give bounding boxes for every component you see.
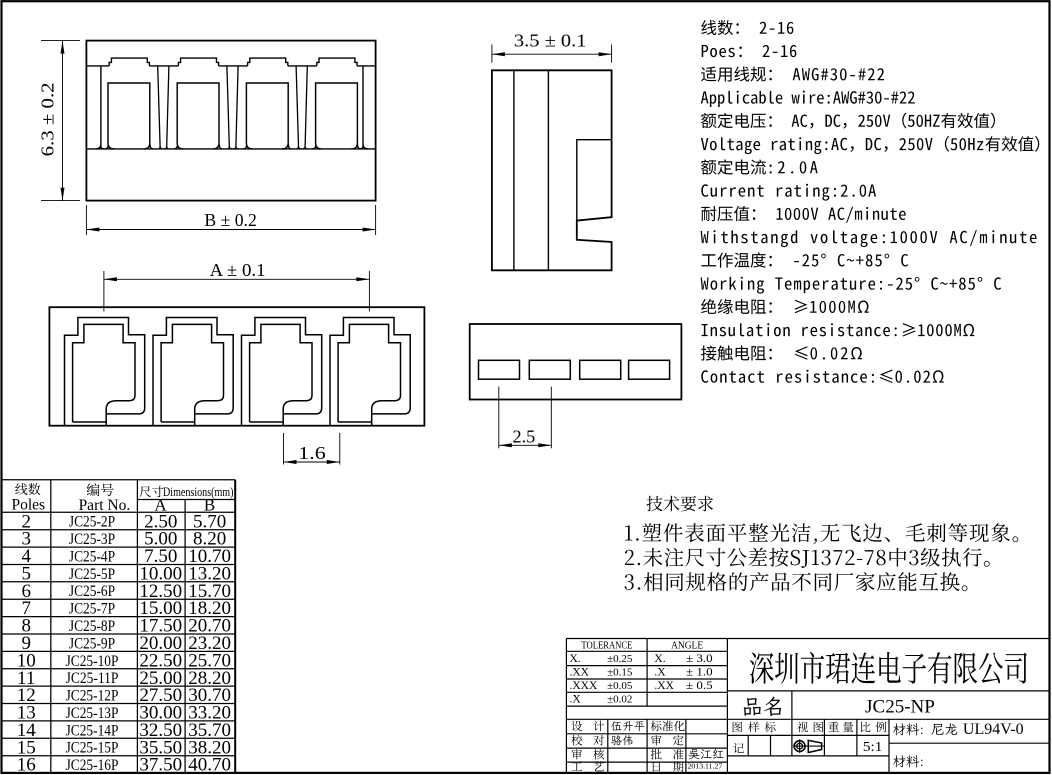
svg-text:±0.25: ±0.25 (607, 653, 633, 665)
svg-text:JC25-15P: JC25-15P (66, 740, 119, 757)
svg-text:X.: X. (570, 653, 581, 665)
svg-text:JC25-14P: JC25-14P (66, 722, 119, 739)
svg-text:B ± 0.2: B ± 0.2 (204, 210, 256, 230)
svg-text:Dimensions(mm): Dimensions(mm) (163, 484, 234, 499)
svg-text:ANGLE: ANGLE (671, 640, 703, 652)
svg-text:JC25-11P: JC25-11P (66, 670, 119, 687)
svg-text:JC25-7P: JC25-7P (69, 601, 115, 618)
svg-text:.XXX: .XXX (570, 680, 598, 692)
svg-text:± 0.5: ± 0.5 (686, 680, 713, 692)
svg-text:JC25-16P: JC25-16P (66, 757, 119, 774)
svg-text:JC25-10P: JC25-10P (66, 653, 119, 670)
svg-text:.XX: .XX (570, 667, 590, 679)
svg-text:6.3 ± 0.2: 6.3 ± 0.2 (38, 82, 58, 156)
svg-text:16: 16 (17, 755, 36, 775)
svg-text:JC25-8P: JC25-8P (69, 618, 115, 635)
svg-text:UL94V-0: UL94V-0 (963, 721, 1024, 738)
svg-text:2.5: 2.5 (513, 427, 536, 447)
svg-text:X.: X. (654, 653, 665, 665)
svg-text:JC25-4P: JC25-4P (69, 549, 115, 566)
svg-text:.X: .X (570, 694, 582, 706)
svg-text:.X: .X (654, 667, 666, 679)
svg-text:JC25-6P: JC25-6P (69, 583, 115, 600)
svg-text:±0.05: ±0.05 (607, 680, 633, 692)
svg-text:±0.02: ±0.02 (607, 694, 632, 706)
svg-text:JC25-5P: JC25-5P (69, 566, 115, 583)
svg-text:JC25-2P: JC25-2P (69, 514, 115, 531)
svg-text:1.6: 1.6 (298, 443, 325, 463)
svg-text:JC25-3P: JC25-3P (69, 531, 115, 548)
svg-text:JC25-12P: JC25-12P (66, 688, 119, 705)
svg-text:± 1.0: ± 1.0 (686, 667, 713, 679)
svg-text:.XX: .XX (654, 680, 674, 692)
svg-text:2013.11.27: 2013.11.27 (688, 761, 723, 770)
svg-text:JC25-NP: JC25-NP (865, 697, 935, 718)
svg-text:JC25-13P: JC25-13P (66, 705, 119, 722)
svg-text:A ± 0.1: A ± 0.1 (210, 260, 266, 280)
svg-text:5:1: 5:1 (863, 740, 883, 755)
svg-text:3.5 ± 0.1: 3.5 ± 0.1 (514, 30, 587, 50)
svg-text:37.50: 37.50 (139, 755, 182, 775)
svg-text:40.70: 40.70 (188, 755, 231, 775)
svg-text:± 3.0: ± 3.0 (686, 653, 713, 665)
svg-text:TOLERANCE: TOLERANCE (581, 640, 632, 652)
svg-text:Part No.: Part No. (79, 497, 131, 514)
svg-text:±0.15: ±0.15 (607, 667, 633, 679)
svg-text:JC25-9P: JC25-9P (69, 635, 115, 652)
